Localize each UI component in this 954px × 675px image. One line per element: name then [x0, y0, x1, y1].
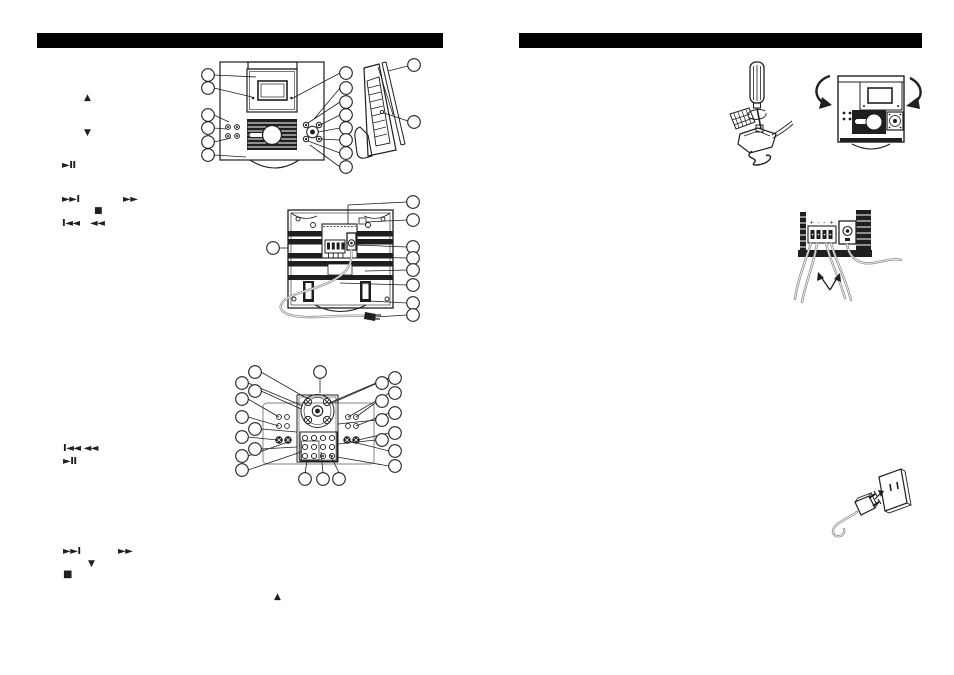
- back-view-drawing: [265, 195, 425, 335]
- terminal-polarity-marks: + - - +: [809, 220, 834, 226]
- skip-next-symbol-2: ►►I: [63, 547, 81, 557]
- left-page-header-bar: [37, 33, 443, 48]
- callout-circles: [236, 366, 402, 486]
- right-panel-buttons: [343, 415, 359, 444]
- left-button-cluster: [226, 125, 240, 139]
- figure-screwdriver: [722, 58, 797, 163]
- jog-pad: [301, 395, 334, 428]
- figure-panel-view: [233, 362, 405, 494]
- display-dot-right: [290, 97, 293, 100]
- front-view-drawing: [198, 55, 430, 190]
- mini-front-view: [838, 76, 904, 149]
- left-panel-buttons: [275, 415, 291, 444]
- volume-knob: [263, 126, 282, 145]
- skip-next-symbol: ►►I: [62, 195, 80, 205]
- tuner-dial-area: [247, 119, 297, 150]
- power-plug-icon: [833, 491, 881, 536]
- tune-up-arrow-symbol: ▲: [84, 94, 90, 103]
- rotate-unit-drawing: [808, 66, 926, 154]
- right-page-header-bar: [519, 33, 922, 48]
- terminals-drawing: + - - +: [793, 203, 905, 305]
- figure-front-and-side-view: [198, 55, 430, 190]
- stop-symbol-2: ■: [63, 570, 72, 580]
- antenna-jack-box: [839, 221, 856, 244]
- tune-down-arrow-symbol: ▼: [84, 129, 90, 138]
- screwdriver-drawing: [722, 58, 797, 163]
- rewind-symbol: ◄◄: [90, 219, 104, 229]
- leader-lines: [279, 202, 407, 317]
- side-view-drawing: [355, 59, 420, 158]
- stop-symbol: ■: [94, 207, 102, 216]
- manual-spread: ▲ ▼ ►II ►►I ►► ■ I◄◄ ◄◄ I◄◄ ◄◄ ►II ►►I ►…: [0, 0, 954, 675]
- eject-up-arrow-symbol: ▲: [274, 593, 280, 602]
- fast-forward-symbol-2: ►►: [118, 547, 132, 557]
- preset-down-arrow-symbol: ▼: [88, 560, 94, 569]
- display-dot-left: [252, 97, 255, 100]
- leader-lines: [248, 372, 389, 473]
- figure-terminals: + - - +: [793, 203, 905, 305]
- rotate-right-arrow-icon: [906, 78, 921, 109]
- terminal-clamp: [738, 121, 793, 165]
- figure-power-plug: [818, 458, 920, 546]
- skip-prev-rewind-symbol: I◄◄ ◄◄: [63, 444, 98, 454]
- rotate-left-arrow-icon: [816, 76, 832, 109]
- figure-rotate-unit: [808, 66, 926, 154]
- figure-back-view: [265, 195, 425, 335]
- feet: [303, 281, 371, 302]
- connector-box: [322, 218, 366, 258]
- skip-prev-symbol: I◄◄: [62, 219, 80, 229]
- panel-view-drawing: [233, 362, 405, 494]
- cd-tray-arc: [250, 160, 299, 168]
- fast-forward-symbol: ►►: [123, 195, 137, 205]
- play-pause-symbol: ►II: [62, 161, 76, 171]
- play-pause-symbol-2: ►II: [63, 457, 77, 467]
- power-plug-drawing: [818, 458, 920, 546]
- speaker-terminal-strip: + - - +: [808, 220, 836, 243]
